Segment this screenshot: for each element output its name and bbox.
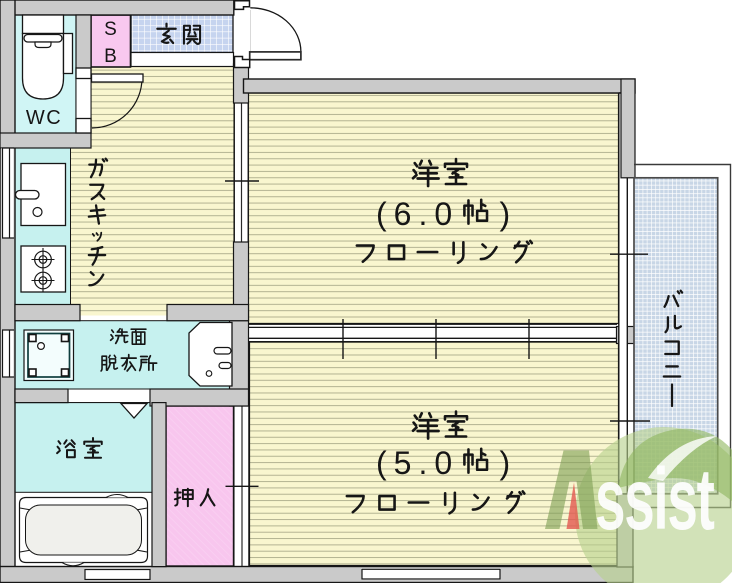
svg-text:(5.0: (5.0 <box>376 445 459 481</box>
svg-text:S: S <box>104 19 117 40</box>
svg-text:B: B <box>104 46 117 67</box>
svg-text:WC: WC <box>26 107 62 129</box>
svg-text:): ) <box>500 196 511 232</box>
svg-text:(6.0: (6.0 <box>376 196 459 232</box>
svg-text:): ) <box>500 445 511 481</box>
svg-text:ssist: ssist <box>595 451 715 548</box>
